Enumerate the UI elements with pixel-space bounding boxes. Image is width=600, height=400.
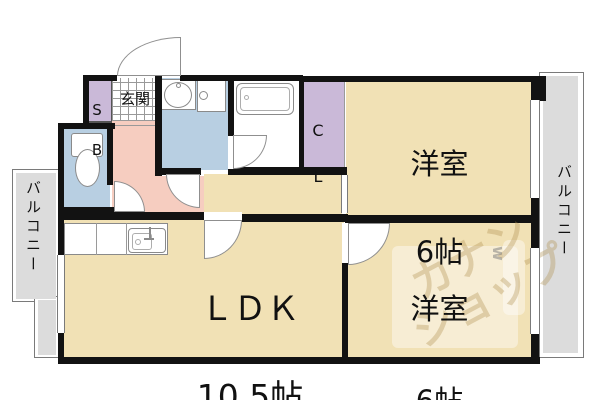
entrance-step-line (112, 120, 158, 126)
ldk-label: ＬＤＫ 10.5帖 (120, 243, 380, 400)
kitchen-counter-divider (96, 223, 97, 255)
wall-washroom-bath (228, 78, 234, 138)
wall-bath-closet-bottom (228, 167, 347, 175)
wall-ldk-top-right (242, 214, 348, 222)
bathtub-drain-icon (244, 95, 249, 100)
washing-machine-drain-icon (199, 91, 208, 100)
shoe-box-label: S B (88, 80, 106, 180)
ldk-doorway (204, 212, 242, 220)
floor-plan: バルコニー バルコニー カナン ショップ w (0, 0, 600, 400)
kitchen-faucet-icon (144, 238, 154, 240)
wall-top-middle (180, 75, 303, 81)
ldk-size: 10.5帖 (120, 375, 380, 400)
shoe-box-label-b: B (88, 140, 106, 160)
western-room-bottom-name: 洋室 (346, 286, 533, 332)
closet-label-l: L (308, 165, 328, 188)
window-ldk-balcony (57, 255, 65, 333)
entrance-label: 玄関 (112, 88, 158, 109)
wall-bath-closet (299, 78, 304, 170)
wall-toilet-right (107, 127, 113, 185)
closet-label: C L (308, 96, 328, 211)
balcony-left-lower (38, 300, 56, 355)
western-room-bottom-label: 洋室 6帖 (346, 240, 533, 400)
wall-top-right (303, 76, 540, 82)
washbasin-faucet-icon (176, 83, 181, 88)
western-room-bottom-size: 6帖 (346, 378, 533, 400)
wall-ldk-top-left (58, 212, 204, 220)
ldk-name: ＬＤＫ (120, 287, 380, 331)
wall-corner-pillar (531, 76, 546, 101)
shoe-box-label-s: S (88, 100, 106, 120)
closet-opening-line (344, 82, 345, 167)
balcony-right-label: バルコニー (553, 164, 575, 292)
entrance-door-arc (117, 37, 181, 76)
balcony-left-label: バルコニー (22, 180, 44, 302)
closet-label-c: C (308, 119, 328, 142)
western-room-top-name: 洋室 (346, 142, 533, 186)
